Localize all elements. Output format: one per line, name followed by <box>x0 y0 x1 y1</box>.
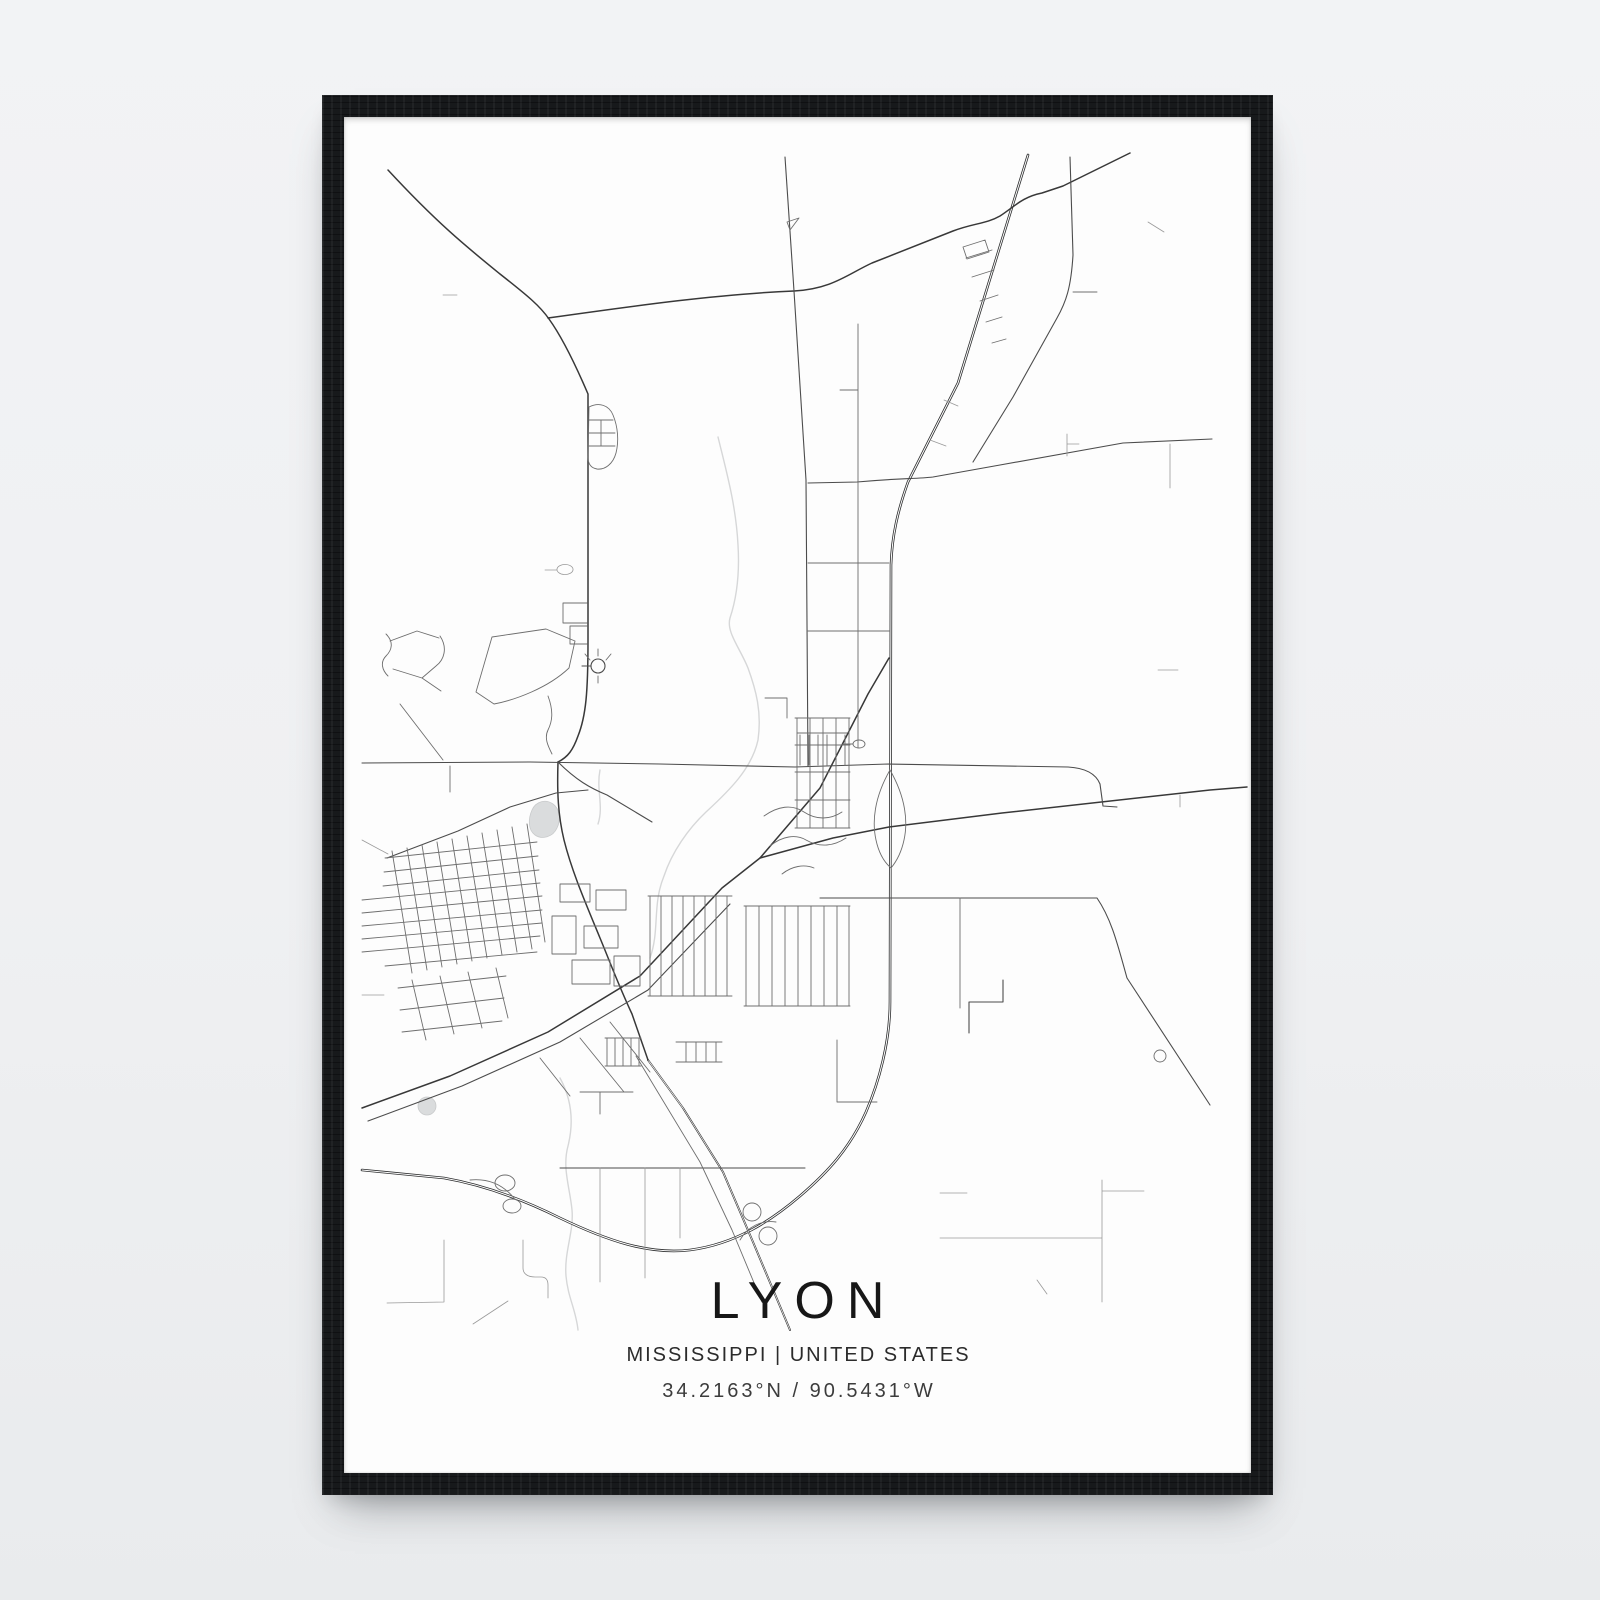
city-street-map <box>344 117 1251 1473</box>
map-minor-streets <box>362 218 1166 1302</box>
map-field-roads <box>362 222 1180 1324</box>
map-ponds <box>418 801 559 1115</box>
map-waterways <box>560 437 759 1330</box>
map-arterial-roads <box>362 153 1247 1108</box>
map-railroad <box>648 1060 790 1330</box>
map-secondary-roads <box>362 157 1212 1168</box>
picture-frame: LYON MISSISSIPPI | UNITED STATES 34.2163… <box>322 95 1273 1495</box>
map-poster: LYON MISSISSIPPI | UNITED STATES 34.2163… <box>344 117 1251 1473</box>
